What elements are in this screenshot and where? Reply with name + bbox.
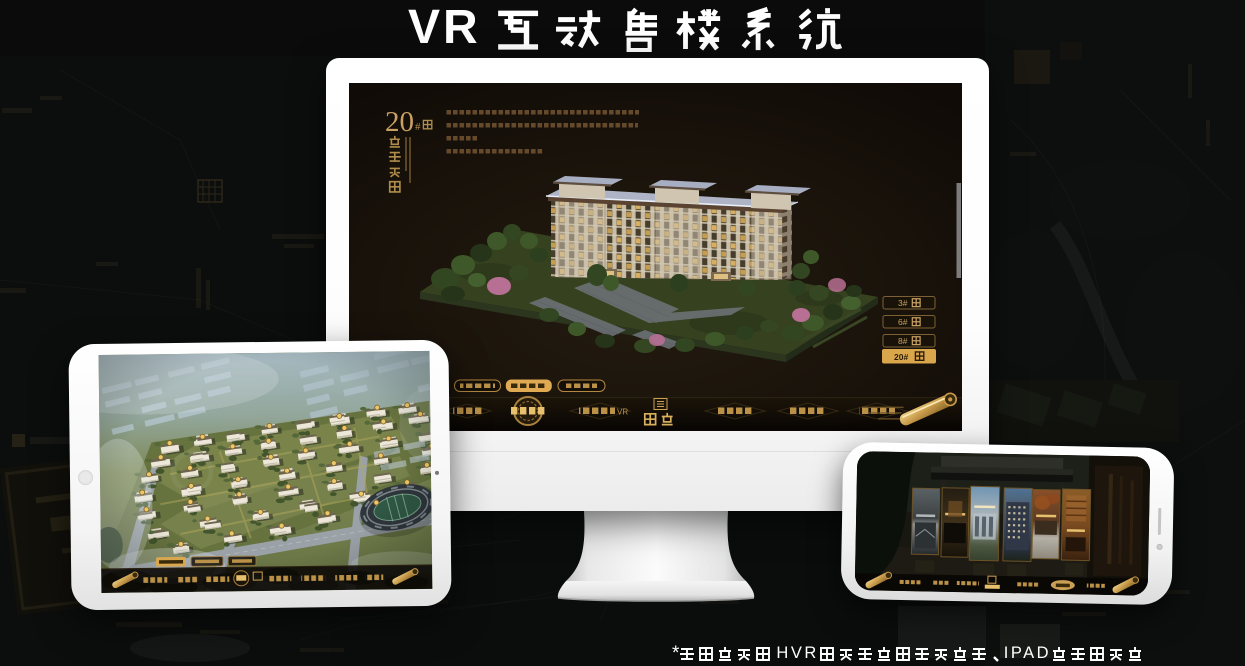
svg-text:6#: 6#	[898, 317, 908, 327]
svg-text:8#: 8#	[898, 336, 908, 346]
svg-text:VR: VR	[617, 408, 628, 417]
svg-text:20#: 20#	[894, 352, 908, 362]
svg-text:#: #	[415, 121, 421, 133]
svg-text:20: 20	[385, 106, 414, 138]
svg-text:3#: 3#	[898, 298, 908, 308]
